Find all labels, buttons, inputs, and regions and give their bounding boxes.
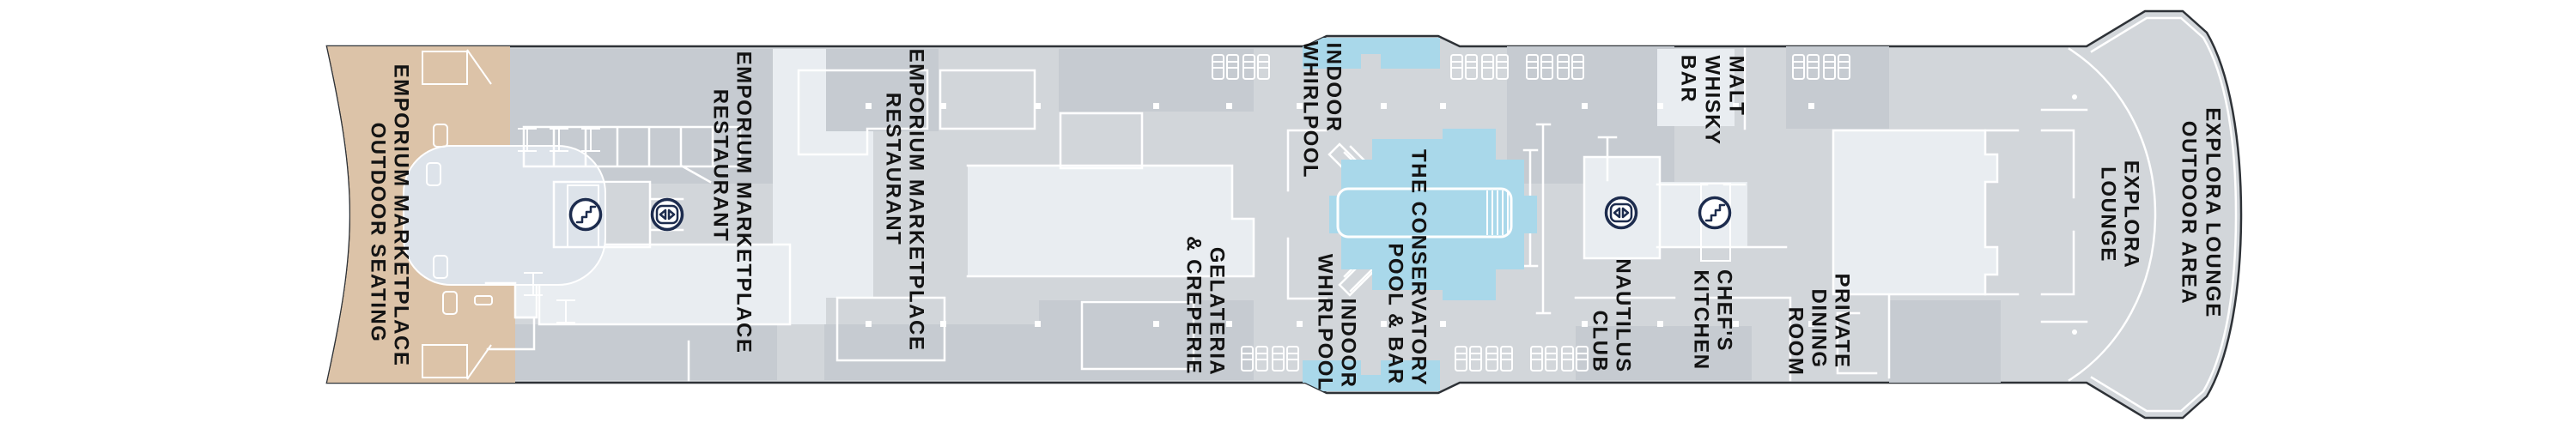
label-nautilus-line1: NAUTILUS — [1612, 258, 1635, 372]
label-emporium-restaurant-fwd-line2: RESTAURANT — [709, 89, 732, 243]
label-private-dining-line1: PRIVATE — [1831, 274, 1854, 369]
label-whirlpool-top-line1: INDOOR — [1322, 43, 1346, 133]
stairs-icon — [571, 200, 601, 230]
label-malt-whisky-line1: MALT — [1725, 56, 1748, 117]
label-emporium-outdoor-line1: EMPORIUM MARKETPLACE — [390, 64, 413, 367]
elevator-icon — [653, 200, 683, 230]
elevator-icon — [1607, 198, 1637, 228]
label-explora-lounge-line2: LOUNGE — [2097, 166, 2120, 263]
door-pivot — [2072, 329, 2077, 335]
label-whirlpool-top-line2: WHIRLPOOL — [1299, 41, 1322, 178]
deck-plan: EMPORIUM MARKETPLACE OUTDOOR SEATING EMP… — [0, 0, 2576, 429]
label-explora-lounge-line1: EXPLORA — [2120, 160, 2143, 269]
label-conservatory-line2: POOL & BAR — [1384, 243, 1407, 384]
deck-plan-svg: EMPORIUM MARKETPLACE OUTDOOR SEATING EMP… — [0, 0, 2576, 429]
label-private-dining-line3: ROOM — [1784, 307, 1807, 377]
explora-lounge-room — [1833, 130, 1997, 294]
label-conservatory-line1: THE CONSERVATORY — [1407, 149, 1431, 386]
label-emporium-restaurant-mid-line2: RESTAURANT — [882, 93, 905, 246]
label-whirlpool-bottom-line2: WHIRLPOOL — [1314, 254, 1337, 391]
label-emporium-restaurant-mid-line1: EMPORIUM MARKETPLACE — [905, 49, 928, 352]
label-gelateria-line2: & CREPERIE — [1182, 236, 1206, 375]
label-chefs-kitchen-line1: CHEF'S — [1713, 269, 1736, 352]
label-emporium-restaurant-fwd-line1: EMPORIUM MARKETPLACE — [732, 51, 756, 354]
label-emporium-outdoor-line2: OUTDOOR SEATING — [367, 123, 390, 343]
label-gelateria-line1: GELATERIA — [1206, 247, 1229, 376]
label-chefs-kitchen-line2: KITCHEN — [1690, 269, 1713, 370]
stairs-icon — [1700, 198, 1730, 228]
label-nautilus-line2: CLUB — [1589, 311, 1612, 373]
label-whirlpool-bottom-line1: INDOOR — [1337, 299, 1360, 389]
label-explora-outdoor-line2: OUTDOOR AREA — [2178, 121, 2201, 305]
label-explora-outdoor-line1: EXPLORA LOUNGE — [2202, 107, 2225, 317]
label-malt-whisky-line3: BAR — [1677, 55, 1700, 104]
label-malt-whisky-line2: WHISKY — [1701, 56, 1724, 146]
label-private-dining-line2: DINING — [1807, 289, 1831, 369]
door-pivot — [2072, 94, 2077, 100]
